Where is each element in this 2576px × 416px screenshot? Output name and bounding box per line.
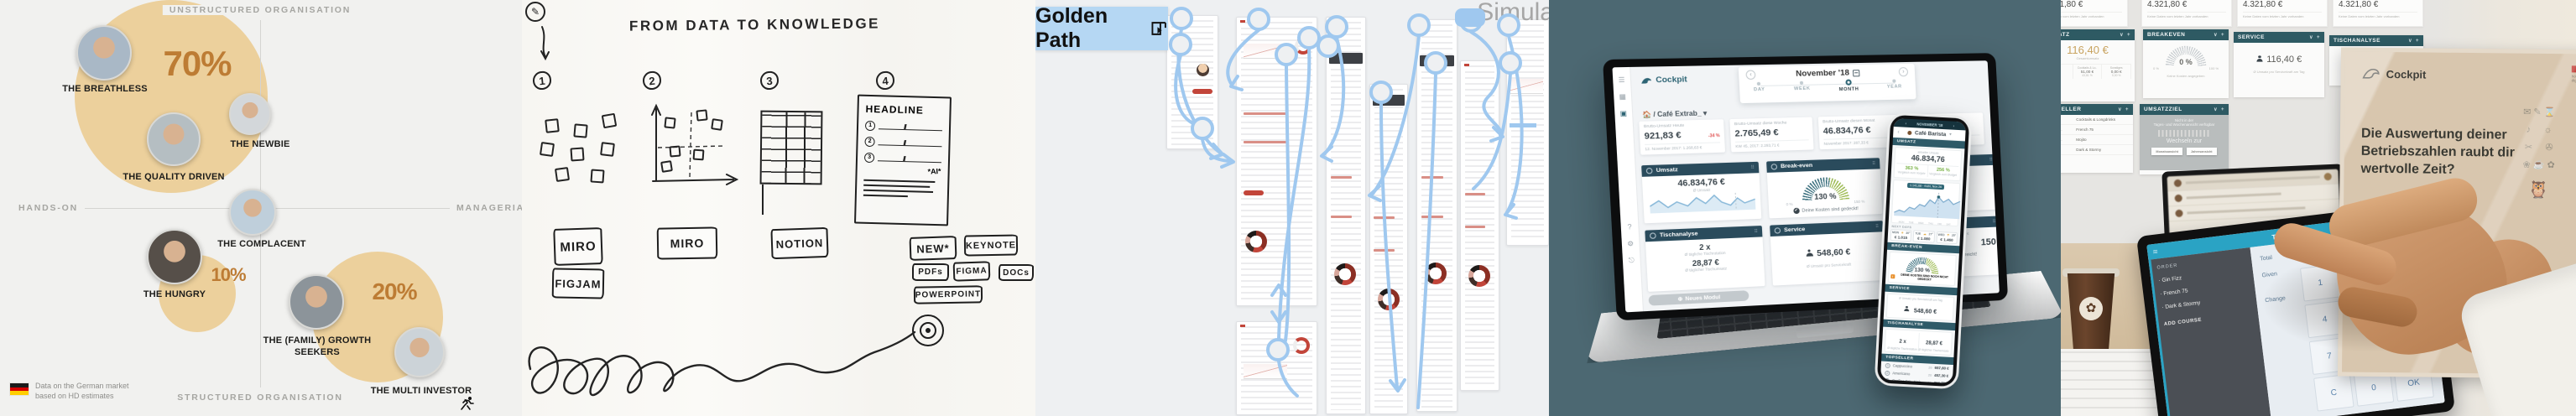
printed-kpi-sub: Keine Daten vom letzten Jahr vorhanden: [2147, 12, 2226, 18]
pen-icon: ✎: [525, 2, 545, 22]
chevron-down-icon[interactable]: ∨: [2214, 32, 2218, 38]
persona-photo: [76, 25, 132, 81]
next-period-button[interactable]: ›: [1899, 67, 1909, 76]
nextday-card[interactable]: WED☂25° € 1.460: [1936, 231, 1958, 244]
total-label: Total: [2260, 255, 2273, 263]
phone-tisch-card: 2 xØ tägliche Tischrotation 28,87 €Ø täg…: [1885, 329, 1953, 356]
phone-umsatz-card: aktueller Umsatz 46.834,76 363 %Vergleic…: [1894, 147, 1963, 181]
tool-box: PDFs: [912, 263, 949, 281]
phone-screen: ‹ NOVEMBER '18 › ‹Café Barista▾ UMSATZ a…: [1880, 118, 1966, 383]
order-item[interactable]: · Dark & Stormy: [2161, 294, 2249, 311]
printed-kpi-card: 4.321,80 € Keine Daten vom letzten Jahr …: [2333, 0, 2423, 27]
sticky-note: [711, 118, 723, 131]
printed-kpi-card: 4.321,80 € Keine Daten vom letzten Jahr …: [2141, 0, 2232, 27]
drag-handle-icon[interactable]: ⠿: [1992, 219, 1995, 224]
printed-kpi-value: 4.321,80 €: [2339, 0, 2417, 9]
widget-service: Service⠿ 548,60 € Ø Umsatz pro Servicekr…: [1770, 221, 1885, 285]
drag-handle-icon[interactable]: ⠿: [1750, 165, 1755, 170]
widget-icon[interactable]: ▣: [1614, 109, 1632, 117]
panel-whiteboard-sketch: ✎ FROM DATA TO KNOWLEDGE 1 2 3 4: [522, 0, 1035, 416]
logout-icon[interactable]: ⎋: [1623, 256, 1640, 265]
sketch-axes: [639, 99, 744, 187]
umsatz-column: Cocktails & Lo..51,00 €43,81 %: [2073, 65, 2103, 79]
x-tick: SAT: [1946, 222, 1950, 226]
add-course-button[interactable]: ADD COURSE: [2164, 311, 2251, 327]
move-icon[interactable]: +: [2317, 35, 2320, 40]
flyer-doodles: ✉ ✎ ⌛♪ ☼✂ ✇❀ ☕ ✿🦉: [2500, 103, 2576, 238]
chevron-down-icon[interactable]: ∨: [2309, 34, 2313, 40]
sketch-doc-headline: HEADLINE: [865, 103, 942, 117]
tool-box: DOCs: [999, 264, 1034, 281]
cockpit-bird-icon: [2362, 67, 2380, 81]
printed-widget-breakeven: BREAKEVEN∨+ 0 % 0 %100 % Keine Kosten an…: [2143, 29, 2229, 98]
sketch-title: FROM DATA TO KNOWLEDGE: [629, 15, 880, 34]
sketch-table-leg: [762, 185, 764, 215]
breakeven-gauge: 130 %: [1799, 175, 1850, 202]
x-tick: THU: [1928, 221, 1933, 225]
sticky-note: [669, 145, 681, 157]
panel-golden-path-flow: Golden Path Simula: [1035, 0, 1549, 416]
panel-photo-scene: 4.321,80 € Keine Daten vom letzten Jahr …: [2061, 0, 2576, 416]
collage-strip: UNSTRUCTURED ORGANISATION HANDS-ON MANAG…: [0, 0, 2576, 416]
topseller-print-row: ...sling 0.2lDark & Stormy: [2061, 145, 2133, 155]
kpi-card: Brutto-Umsatz diese Woche 2.765,49 €+17 …: [1729, 117, 1813, 153]
tool-box: NOTION: [770, 227, 828, 259]
service-icon: [1775, 227, 1781, 233]
printed-kpi-card: 4.321,80 € Keine Daten vom letzten Jahr …: [2061, 0, 2128, 27]
phone-chart-card: 1.141,68 · SUN, Nov 26 MONTUEWEDTHUFRISA…: [1891, 179, 1961, 226]
chevron-down-icon[interactable]: ∨: [2214, 107, 2218, 112]
tab-year[interactable]: YEAR: [1886, 79, 1902, 91]
printed-kpi-sub: Keine Daten vom letzten Jahr vorhanden: [2243, 12, 2322, 18]
nextday-card[interactable]: MON☀30° € 1.015: [1890, 229, 1912, 242]
chart-tooltip: 1.141,68 · SUN, Nov 26: [1907, 183, 1944, 190]
tool-box: MIRO: [657, 226, 718, 259]
venue-name[interactable]: Café Barista: [1915, 130, 1947, 138]
prototype-flow-icon: [1150, 18, 1168, 39]
period-tabs: DAYWEEKMONTHYEAR: [1739, 76, 1916, 94]
tool-box: FIGMA: [953, 261, 991, 282]
settings-icon[interactable]: ⚙: [1622, 239, 1640, 247]
sketch-ai-note: *AI*: [863, 167, 941, 179]
sticky-note: [540, 142, 555, 157]
tab-week[interactable]: WEEK: [1794, 81, 1811, 93]
persona-label: THE NEWBIE: [193, 139, 327, 151]
step-number: 4: [875, 70, 895, 91]
tool-box: NEW*: [910, 236, 957, 261]
sticky-note: [660, 160, 673, 173]
flyer-brand: Cockpit: [2386, 68, 2427, 81]
calendar-icon[interactable]: [1853, 70, 1860, 76]
flow-connectors: [1035, 0, 1549, 416]
tab-day[interactable]: DAY: [1754, 82, 1765, 94]
phone-mockup: ‹ NOVEMBER '18 › ‹Café Barista▾ UMSATZ a…: [1875, 112, 1973, 390]
signature-scribble: [522, 317, 925, 409]
sticky-note: [693, 149, 705, 161]
x-tick: TUE: [1909, 221, 1914, 224]
printed-widget-umsatzziel: UMSATZZIEL∨+ Nicht in der Tages- und Woc…: [2140, 104, 2229, 174]
breakeven-icon: [1770, 164, 1777, 169]
axis-label-top: UNSTRUCTURED ORGANISATION: [163, 5, 357, 15]
sticky-note: [696, 109, 707, 121]
jahresansicht-button[interactable]: Jahresansicht: [2187, 148, 2217, 155]
cockpit-bird-icon: [1640, 75, 1653, 85]
drag-handle-icon[interactable]: ⠿: [1875, 224, 1879, 229]
printed-kpi-value: 4.321,80 €: [2243, 0, 2322, 9]
sticky-note: [600, 142, 615, 157]
prev-period-button[interactable]: ‹: [1745, 70, 1755, 80]
persona-photo: [394, 327, 445, 377]
move-icon[interactable]: +: [2125, 107, 2129, 112]
chevron-down-icon[interactable]: ∨: [2118, 107, 2122, 112]
sketch-document: HEADLINE 1 2 3 *AI*: [854, 95, 952, 226]
x-tick: MON: [1899, 220, 1905, 223]
laptop-trackpad: [1796, 323, 1854, 339]
printed-widget-topseller: TOPSELLER∨+ ...eineCocktails & Longdrink…: [2061, 104, 2133, 173]
runner-icon: [458, 396, 475, 411]
panel-persona-quadrant: UNSTRUCTURED ORGANISATION HANDS-ON MANAG…: [0, 0, 522, 416]
umsatz-icon: [1646, 168, 1653, 174]
persona-photo: [289, 274, 344, 330]
kpi-card: Brutto-Umsatz Heute 921,83 €-34 % 12. No…: [1639, 119, 1725, 154]
printed-widget-service: SERVICE∨+ 116,40 € Ø Umsatz pro Servicek…: [2234, 32, 2324, 97]
axis-label-bottom: STRUCTURED ORGANISATION: [170, 393, 350, 403]
widget-breakeven: Break-even⠿ 130 % 0 % 150 %: [1766, 158, 1882, 218]
printed-widget-umsatz: UMSATZ∨+ 116,40 € Gesamtumsatz 0 €% Cock…: [2061, 29, 2135, 101]
chevron-down-icon[interactable]: ∨: [2120, 32, 2124, 38]
topseller-print-row: ...ßburgund...Mojito: [2061, 135, 2133, 145]
brand-name: Cockpit: [1656, 75, 1687, 85]
persona-label: THE QUALITY DRIVEN: [107, 172, 241, 184]
sticky-note: [555, 167, 570, 182]
flyer-headline: Die Auswertung deiner Betriebszahlen rau…: [2360, 126, 2525, 179]
axis-label-left: HANDS-ON: [12, 203, 85, 213]
move-icon[interactable]: +: [2221, 107, 2224, 112]
printed-kpi-sub: Keine Daten vom letzten Jahr vorhanden: [2061, 12, 2122, 18]
tischanalyse-icon: [1650, 232, 1656, 239]
drag-handle-icon[interactable]: ⠿: [1754, 229, 1758, 234]
date-navigator: ‹ November '18 › DAYWEEKMONTHYEAR: [1739, 64, 1916, 103]
axis-label-right: MANAGERIAL: [450, 203, 522, 213]
phone-breakeven-card: 130 % !DEINE KOSTEN SIND NOCH NICHT GEDE…: [1888, 252, 1957, 286]
persona-label: THE COMPLACENT: [195, 239, 329, 251]
tool-box: MIRO: [553, 227, 603, 266]
tab-month[interactable]: MONTH: [1838, 80, 1859, 91]
venue-icon: [1907, 130, 1911, 134]
monatsansicht-button[interactable]: Monatsansicht: [2151, 148, 2182, 155]
step-number: 3: [759, 70, 780, 91]
persona-photo: [147, 112, 201, 166]
persona-photo: [229, 189, 276, 236]
widget-tischanalyse: Tischanalyse⠿ 2 x Ø tägliche Tischrotati…: [1645, 226, 1765, 292]
new-module-button[interactable]: ⊕ Neues Modul: [1648, 290, 1749, 305]
nextday-card[interactable]: TUE☁27° € 1.080: [1913, 230, 1935, 242]
segment-percentage: 20%: [344, 278, 445, 305]
widget-umsatz: Umsatz⠿ 46.834,76 € Ø Umsatz: [1641, 162, 1761, 224]
german-flag-icon: [10, 383, 29, 395]
footnote-line2: based on HD estimates: [35, 392, 114, 400]
step-number: 2: [642, 70, 662, 91]
persona-label: THE HUNGRY: [107, 289, 242, 301]
sketch-arrow-icon: [535, 25, 555, 62]
hospitality-digital-logo: hospdigita: [2572, 65, 2576, 82]
segment-percentage: 10%: [203, 264, 253, 286]
dashboard-sidebar[interactable]: ☰ ▦ ▣ ? ⚙ ⎋: [1612, 67, 1644, 312]
golden-path-chip[interactable]: Golden Path: [1035, 7, 1168, 50]
umsatzziel-bar: [2158, 130, 2210, 137]
move-icon[interactable]: +: [2127, 33, 2130, 38]
move-icon[interactable]: +: [2416, 39, 2419, 44]
keypad-key[interactable]: C: [2313, 374, 2354, 412]
golden-path-label: Golden Path: [1035, 4, 1142, 53]
footnote-line1: Data on the German market: [35, 382, 129, 390]
tool-box: FIGJAM: [552, 268, 605, 299]
move-icon[interactable]: +: [2221, 33, 2224, 38]
wifi-icon: ≋: [2152, 247, 2159, 256]
breadcrumb[interactable]: 🏠 / Café Extrab_ ▾: [1642, 109, 1708, 118]
person-icon: [2256, 55, 2262, 61]
menu-icon[interactable]: ☰: [1613, 75, 1630, 84]
persona-photo: [229, 93, 271, 135]
x-tick: FRI: [1937, 222, 1942, 226]
drag-handle-icon[interactable]: ⠿: [1872, 161, 1875, 166]
sticky-note: [590, 169, 604, 183]
person-icon: [1806, 249, 1813, 257]
segment-percentage: 70%: [138, 44, 256, 84]
sticky-note: [664, 117, 675, 128]
printed-kpi-card: 4.321,80 € Keine Daten vom letzten Jahr …: [2237, 0, 2328, 27]
bullseye-icon: [926, 328, 931, 333]
printed-kpi-sub: Keine Daten vom letzten Jahr vorhanden: [2339, 12, 2417, 18]
umsatz-column: Sonstiges0,00 €0,00 %: [2102, 65, 2131, 79]
persona-label: THE BREATHLESS: [38, 84, 172, 96]
order-item[interactable]: · French 75: [2160, 281, 2247, 298]
order-item[interactable]: · Gin Fizz: [2158, 268, 2245, 284]
x-tick: WED: [1918, 221, 1924, 225]
printed-kpi-value: 4.321,80 €: [2061, 0, 2122, 9]
umsatz-line-chart: [1649, 190, 1755, 214]
persona-label: THE (FAMILY) GROWTHSEEKERS: [250, 335, 384, 359]
back-icon[interactable]: ‹: [1897, 129, 1900, 135]
persona-photo: [147, 229, 202, 284]
tool-box: POWERPOINT: [914, 285, 983, 304]
help-icon[interactable]: ?: [1621, 223, 1639, 231]
chevron-down-icon[interactable]: ∨: [2408, 38, 2412, 44]
umsatz-column: 0 €%: [2061, 65, 2073, 79]
panel-product-mockups: ☰ ▦ ▣ ? ⚙ ⎋ Cockpit ‹ November: [1549, 0, 2061, 416]
topseller-print-row: ...eineCocktails & Longdrinks: [2061, 115, 2133, 125]
topseller-print-row: ...ßburgund...French 75: [2061, 125, 2133, 135]
sketch-table: [760, 111, 823, 185]
sticky-note: [570, 147, 584, 161]
step-number: 1: [532, 70, 552, 91]
tool-box: KEYNOTE: [964, 234, 1018, 256]
drag-handle-icon[interactable]: ⠿: [1989, 157, 1993, 162]
sticky-note: [545, 118, 560, 133]
sticky-note: [573, 123, 587, 138]
grid-icon[interactable]: ▦: [1614, 92, 1631, 101]
phone-area-chart: [1894, 189, 1961, 219]
phone-service-card: Ø Umsatz pro Servicekraft am Tag 548,60 …: [1886, 294, 1954, 321]
sticky-note: [602, 113, 618, 129]
person-icon: [1904, 306, 1909, 311]
printed-kpi-value: 4.321,80 €: [2147, 0, 2226, 9]
